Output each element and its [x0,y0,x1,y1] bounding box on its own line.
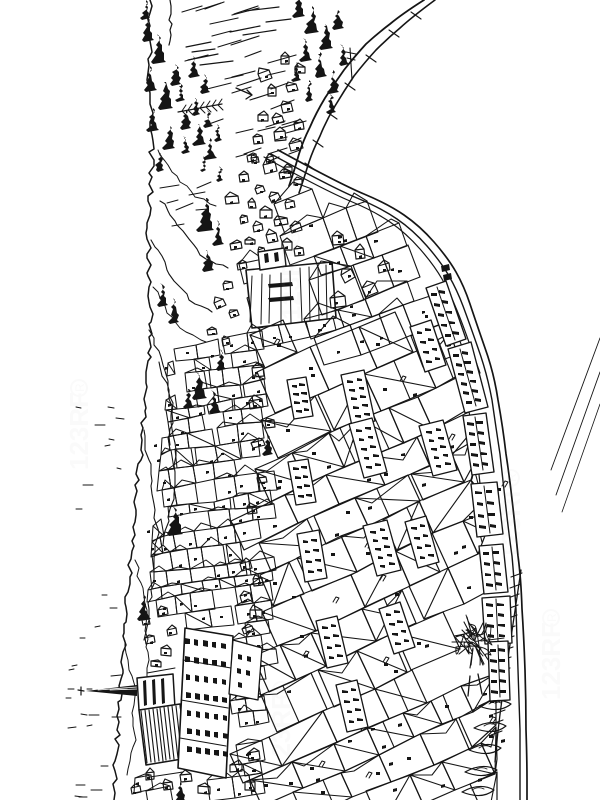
svg-text:123RF: 123RF [64,392,94,470]
svg-text:R: R [275,685,289,694]
svg-text:123RF: 123RF [536,622,566,700]
svg-text:R: R [505,473,519,482]
svg-text:R: R [545,613,559,622]
svg-text:123RF: 123RF [276,242,306,320]
svg-text:123RF: 123RF [496,482,526,560]
svg-text:R: R [73,383,87,392]
svg-text:123RF: 123RF [266,694,296,772]
svg-text:R: R [285,233,299,242]
